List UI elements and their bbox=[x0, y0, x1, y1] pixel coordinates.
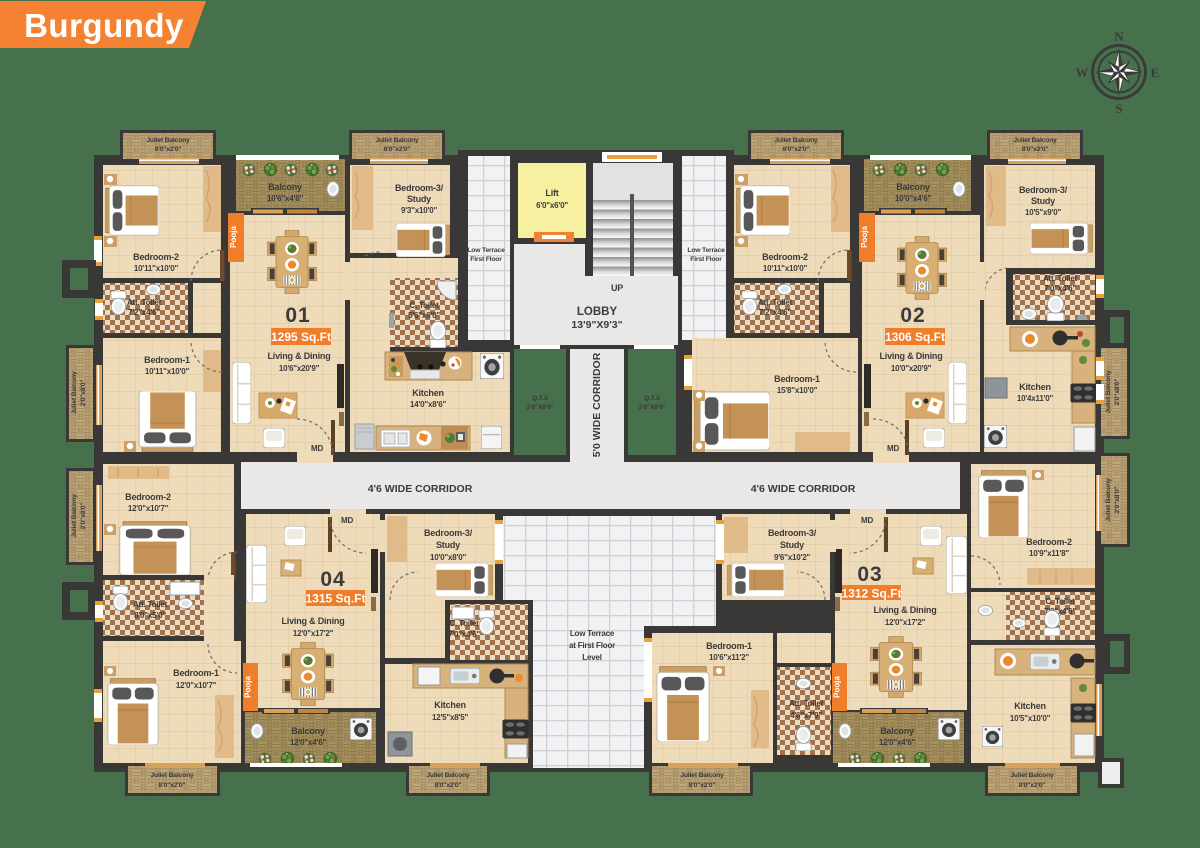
svg-text:Juliet Balcony: Juliet Balcony bbox=[71, 494, 78, 538]
svg-text:Juliet Balcony: Juliet Balcony bbox=[1105, 478, 1112, 522]
svg-text:Bedroom-2: Bedroom-2 bbox=[762, 252, 808, 262]
svg-text:8'0"x2'0": 8'0"x2'0" bbox=[159, 782, 186, 789]
svg-text:Bedroom-1: Bedroom-1 bbox=[144, 355, 190, 365]
svg-text:Study: Study bbox=[780, 540, 804, 550]
svg-text:Juliet Balcony: Juliet Balcony bbox=[71, 371, 78, 415]
svg-text:3'8"X8'6": 3'8"X8'6" bbox=[638, 404, 666, 411]
svg-text:Bedroom-3/: Bedroom-3/ bbox=[395, 183, 444, 193]
svg-text:Juliet Balcony: Juliet Balcony bbox=[774, 137, 818, 144]
svg-text:8'0"x2'0": 8'0"x2'0" bbox=[1019, 782, 1046, 789]
svg-text:Juliet Balcony: Juliet Balcony bbox=[375, 137, 419, 144]
svg-text:Study: Study bbox=[1031, 196, 1055, 206]
svg-text:Kitchen: Kitchen bbox=[1014, 701, 1046, 711]
svg-text:MD: MD bbox=[311, 444, 323, 453]
svg-text:at First Floor: at First Floor bbox=[569, 641, 615, 650]
svg-text:8'0"x2'0": 8'0"x2'0" bbox=[783, 146, 810, 153]
svg-text:9'6"x10'2": 9'6"x10'2" bbox=[774, 553, 810, 562]
svg-text:10'4x11'0": 10'4x11'0" bbox=[1017, 394, 1054, 403]
svg-text:Kitchen: Kitchen bbox=[1019, 382, 1051, 392]
svg-text:10'11"x10'0": 10'11"x10'0" bbox=[763, 264, 808, 273]
svg-text:13'9"X9'3": 13'9"X9'3" bbox=[571, 319, 622, 331]
svg-text:4'6"x7'9": 4'6"x7'9" bbox=[790, 711, 822, 720]
svg-text:Juliet Balcony: Juliet Balcony bbox=[1105, 370, 1112, 414]
svg-text:5'0 WIDE CORRIDOR: 5'0 WIDE CORRIDOR bbox=[591, 352, 603, 457]
svg-text:MD: MD bbox=[341, 516, 353, 525]
svg-text:12'0"x10'7": 12'0"x10'7" bbox=[128, 504, 169, 513]
svg-text:MD: MD bbox=[887, 444, 899, 453]
svg-text:12'0"x4'6": 12'0"x4'6" bbox=[879, 738, 915, 747]
svg-text:S: S bbox=[1115, 101, 1122, 116]
svg-text:10'11"x10'0": 10'11"x10'0" bbox=[134, 264, 179, 273]
svg-text:Study: Study bbox=[436, 540, 460, 550]
svg-text:Living & Dining: Living & Dining bbox=[874, 605, 937, 615]
svg-text:12'0"x17'2": 12'0"x17'2" bbox=[293, 629, 334, 638]
svg-text:12'0"x17'2": 12'0"x17'2" bbox=[885, 618, 926, 627]
svg-text:10'0"x4'6": 10'0"x4'6" bbox=[895, 194, 931, 203]
svg-text:10'0"x8'0": 10'0"x8'0" bbox=[430, 553, 466, 562]
svg-text:First Floor: First Floor bbox=[690, 256, 722, 263]
svg-text:1295 Sq.Ft: 1295 Sq.Ft bbox=[271, 330, 331, 344]
svg-text:8'0"x5'0": 8'0"x5'0" bbox=[134, 611, 166, 620]
svg-text:UP: UP bbox=[611, 283, 623, 293]
svg-text:10'6"x4'6": 10'6"x4'6" bbox=[267, 194, 303, 203]
svg-text:1315 Sq.Ft: 1315 Sq.Ft bbox=[305, 592, 365, 606]
svg-text:Living & Dining: Living & Dining bbox=[282, 616, 345, 626]
svg-text:10'0"x20'9": 10'0"x20'9" bbox=[891, 364, 932, 373]
svg-text:Bedroom-3/: Bedroom-3/ bbox=[768, 528, 817, 538]
svg-text:15'8"x10'0": 15'8"x10'0" bbox=[777, 386, 818, 395]
svg-text:Att. Toilet: Att. Toilet bbox=[789, 699, 824, 708]
svg-text:8'0"x2'0": 8'0"x2'0" bbox=[155, 146, 182, 153]
svg-text:Juliet Balcony: Juliet Balcony bbox=[150, 772, 194, 779]
svg-text:Juliet Balcony: Juliet Balcony bbox=[146, 137, 190, 144]
svg-text:Lift: Lift bbox=[545, 188, 558, 198]
svg-text:Study: Study bbox=[407, 194, 431, 204]
svg-text:2'0"x8'0": 2'0"x8'0" bbox=[80, 380, 87, 407]
svg-text:Living & Dining: Living & Dining bbox=[268, 351, 331, 361]
svg-text:Pooja: Pooja bbox=[860, 226, 869, 248]
svg-text:Juliet Balcony: Juliet Balcony bbox=[680, 772, 724, 779]
svg-text:Bedroom-3/: Bedroom-3/ bbox=[1019, 185, 1068, 195]
svg-text:Balcony: Balcony bbox=[291, 726, 325, 736]
svg-text:Low Terrace: Low Terrace bbox=[687, 247, 725, 254]
svg-text:Bedroom-1: Bedroom-1 bbox=[173, 668, 219, 678]
svg-text:Burgundy: Burgundy bbox=[24, 7, 184, 44]
svg-text:C. Toilet: C. Toilet bbox=[409, 301, 439, 310]
svg-text:02: 02 bbox=[900, 304, 925, 327]
svg-text:Bedroom-1: Bedroom-1 bbox=[706, 641, 752, 651]
svg-text:Att. Toilet: Att. Toilet bbox=[1043, 274, 1078, 283]
svg-text:12'0"x10'7": 12'0"x10'7" bbox=[176, 681, 217, 690]
svg-text:4'6 WIDE CORRIDOR: 4'6 WIDE CORRIDOR bbox=[368, 483, 473, 495]
svg-text:Level: Level bbox=[582, 653, 601, 662]
svg-text:Pooja: Pooja bbox=[244, 676, 253, 698]
svg-text:12'5"x8'5": 12'5"x8'5" bbox=[432, 713, 468, 722]
svg-text:Balcony: Balcony bbox=[880, 726, 914, 736]
svg-text:Kitchen: Kitchen bbox=[434, 700, 466, 710]
svg-text:LOBBY: LOBBY bbox=[577, 306, 618, 318]
svg-text:Att. Toilet: Att. Toilet bbox=[133, 600, 168, 609]
svg-text:14'0"x8'6": 14'0"x8'6" bbox=[410, 400, 446, 409]
svg-text:Pooja: Pooja bbox=[229, 226, 238, 248]
svg-text:Balcony: Balcony bbox=[268, 182, 302, 192]
svg-text:Att. Toilet: Att. Toilet bbox=[127, 298, 162, 307]
svg-text:10'6"x11'2": 10'6"x11'2" bbox=[709, 653, 749, 662]
svg-text:Bedroom-2: Bedroom-2 bbox=[125, 492, 171, 502]
svg-text:Bedroom-2: Bedroom-2 bbox=[1026, 537, 1072, 547]
svg-text:2'0"x8'0": 2'0"x8'0" bbox=[80, 503, 87, 530]
svg-text:8'0"x2'0": 8'0"x2'0" bbox=[384, 146, 411, 153]
svg-text:Bedroom-1: Bedroom-1 bbox=[774, 374, 820, 384]
svg-text:Living & Dining: Living & Dining bbox=[880, 351, 943, 361]
svg-text:Att. Toilet: Att. Toilet bbox=[758, 298, 793, 307]
svg-text:7'2"x4'6": 7'2"x4'6" bbox=[128, 308, 160, 317]
svg-text:10'5"x10'0": 10'5"x10'0" bbox=[1010, 714, 1051, 723]
svg-text:7'0"x4'6": 7'0"x4'6" bbox=[448, 630, 480, 639]
svg-text:N: N bbox=[1114, 29, 1124, 44]
svg-text:Pooja: Pooja bbox=[833, 676, 842, 698]
svg-text:MD: MD bbox=[861, 516, 873, 525]
svg-text:Bedroom-3/: Bedroom-3/ bbox=[424, 528, 473, 538]
svg-text:1306 Sq.Ft: 1306 Sq.Ft bbox=[885, 330, 945, 344]
svg-text:5'6"x6'0": 5'6"x6'0" bbox=[408, 311, 440, 320]
svg-text:03: 03 bbox=[857, 563, 882, 586]
svg-text:Kitchen: Kitchen bbox=[412, 388, 444, 398]
svg-text:Bedroom-2: Bedroom-2 bbox=[133, 252, 179, 262]
svg-text:8'0"x2'0": 8'0"x2'0" bbox=[435, 782, 462, 789]
svg-text:10'5"x9'0": 10'5"x9'0" bbox=[1025, 208, 1061, 217]
svg-text:10'9"x11'8": 10'9"x11'8" bbox=[1029, 549, 1069, 558]
svg-text:C. Toilet: C. Toilet bbox=[1045, 597, 1075, 606]
svg-text:Juliet Balcony: Juliet Balcony bbox=[1013, 137, 1057, 144]
svg-text:9'3"x10'0": 9'3"x10'0" bbox=[401, 206, 437, 215]
svg-text:8'0"x2'0": 8'0"x2'0" bbox=[689, 782, 716, 789]
svg-text:4'6 WIDE CORRIDOR: 4'6 WIDE CORRIDOR bbox=[751, 483, 856, 495]
svg-text:First Floor: First Floor bbox=[470, 256, 502, 263]
svg-text:C. Toilet: C. Toilet bbox=[449, 619, 479, 628]
svg-text:7'0"x4'6": 7'0"x4'6" bbox=[1044, 284, 1076, 293]
svg-text:10'11"x10'0": 10'11"x10'0" bbox=[145, 367, 190, 376]
svg-text:W: W bbox=[1076, 65, 1089, 80]
svg-text:7'2"x4'6": 7'2"x4'6" bbox=[759, 308, 791, 317]
svg-text:12'0"x4'6": 12'0"x4'6" bbox=[290, 738, 326, 747]
svg-text:10'6"x20'9": 10'6"x20'9" bbox=[279, 364, 320, 373]
svg-text:Low Terrace: Low Terrace bbox=[570, 629, 615, 638]
svg-text:04: 04 bbox=[320, 568, 345, 591]
svg-text:6'0"x6'0": 6'0"x6'0" bbox=[536, 201, 568, 210]
svg-text:2'0"x8'0": 2'0"x8'0" bbox=[1114, 379, 1121, 406]
svg-text:Q.T.S: Q.T.S bbox=[532, 395, 549, 402]
svg-text:Low Terrace: Low Terrace bbox=[467, 247, 505, 254]
svg-text:2'0"x8'0": 2'0"x8'0" bbox=[1114, 487, 1121, 514]
svg-text:8'0"x2'0": 8'0"x2'0" bbox=[1022, 146, 1049, 153]
svg-text:01: 01 bbox=[285, 304, 310, 327]
svg-text:E: E bbox=[1151, 65, 1160, 80]
svg-text:3'8"X8'6": 3'8"X8'6" bbox=[526, 404, 554, 411]
svg-text:Balcony: Balcony bbox=[896, 182, 930, 192]
svg-text:Juliet Balcony: Juliet Balcony bbox=[426, 772, 470, 779]
svg-text:1312 Sq.Ft: 1312 Sq.Ft bbox=[841, 587, 901, 601]
svg-text:Q.T.S: Q.T.S bbox=[644, 395, 661, 402]
svg-text:Juliet Balcony: Juliet Balcony bbox=[1010, 772, 1054, 779]
